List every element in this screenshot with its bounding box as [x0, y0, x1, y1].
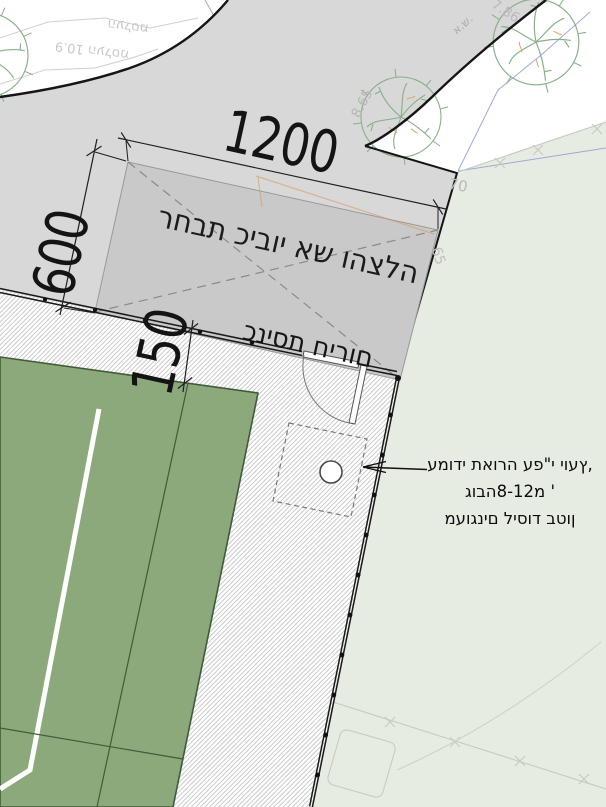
note-line-3: מעוגנים ליסוד בטון — [424, 505, 596, 532]
dimension-label-600: 600 — [23, 205, 98, 302]
note-line-1: עמודי תאורה עפ"י יועץ, — [424, 451, 596, 478]
site-plan: 1200 600 150 רחבת כיבוי אש והצלה כניסת ח… — [0, 0, 606, 807]
lighting-pole-circle — [320, 461, 342, 483]
lighting-pole-note: עמודי תאורה עפ"י יועץ, גובה8-12מ ' מעוגנ… — [424, 451, 596, 532]
note-line-2: גובה8-12מ ' — [424, 478, 596, 505]
dimension-label-150: 150 — [122, 304, 197, 401]
spot-elevation-70: 70 — [447, 177, 468, 195]
